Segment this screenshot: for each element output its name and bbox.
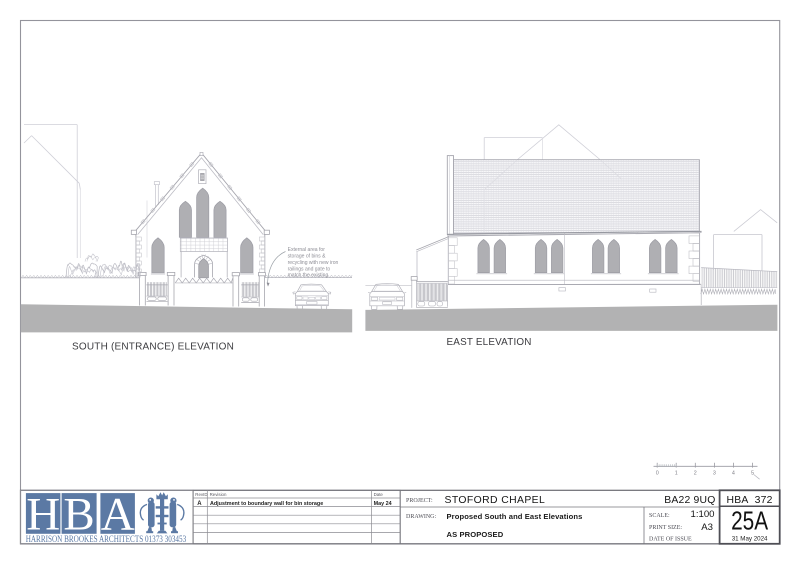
svg-text:A3: A3 [701, 522, 713, 533]
svg-text:railings and gate to: railings and gate to [288, 266, 331, 272]
svg-text:PRINT SIZE:: PRINT SIZE: [649, 525, 682, 531]
svg-text:SCALE:: SCALE: [649, 513, 670, 519]
svg-text:2: 2 [694, 471, 697, 477]
svg-text:EAST ELEVATION: EAST ELEVATION [447, 337, 532, 348]
svg-text:BA22 9UQ: BA22 9UQ [664, 495, 715, 506]
svg-text:Proposed South and East Elevat: Proposed South and East Elevations [447, 512, 583, 521]
svg-text:1:100: 1:100 [690, 509, 714, 520]
svg-text:HBA 372: HBA 372 [727, 495, 773, 506]
svg-text:H: H [26, 488, 60, 540]
svg-text:B: B [63, 488, 94, 540]
svg-text:PROJECT:: PROJECT: [406, 498, 433, 504]
svg-text:A: A [197, 501, 202, 507]
svg-text:RevID: RevID [195, 492, 207, 497]
svg-text:STOFORD CHAPEL: STOFORD CHAPEL [445, 495, 546, 506]
svg-text:25A: 25A [731, 506, 769, 536]
svg-text:4: 4 [732, 471, 735, 477]
svg-text:match the existing: match the existing [288, 273, 329, 279]
svg-text:recycling with new iron: recycling with new iron [288, 260, 339, 266]
svg-text:HARRISON BROOKES ARCHITECTS 01: HARRISON BROOKES ARCHITECTS 01373 303453 [26, 535, 187, 545]
svg-text:0: 0 [656, 471, 659, 477]
svg-text:SOUTH (ENTRANCE) ELEVATION: SOUTH (ENTRANCE) ELEVATION [72, 341, 234, 352]
svg-text:1: 1 [675, 471, 678, 477]
svg-text:AS PROPOSED: AS PROPOSED [447, 530, 504, 539]
svg-text:3: 3 [713, 471, 716, 477]
svg-text:Adjustment to boundary wall fo: Adjustment to boundary wall for bin stor… [210, 501, 323, 507]
svg-text:storage of bins &: storage of bins & [288, 253, 327, 259]
svg-text:31 May 2024: 31 May 2024 [732, 535, 768, 542]
svg-text:Revision: Revision [210, 492, 227, 497]
svg-text:5: 5 [751, 471, 754, 477]
svg-text:DATE OF ISSUE: DATE OF ISSUE [649, 537, 692, 543]
svg-text:May 24: May 24 [374, 501, 392, 507]
svg-text:External area for: External area for [288, 247, 326, 253]
svg-text:DRAWING:: DRAWING: [406, 514, 437, 520]
svg-text:A: A [101, 488, 135, 540]
svg-text:Date: Date [374, 492, 384, 497]
